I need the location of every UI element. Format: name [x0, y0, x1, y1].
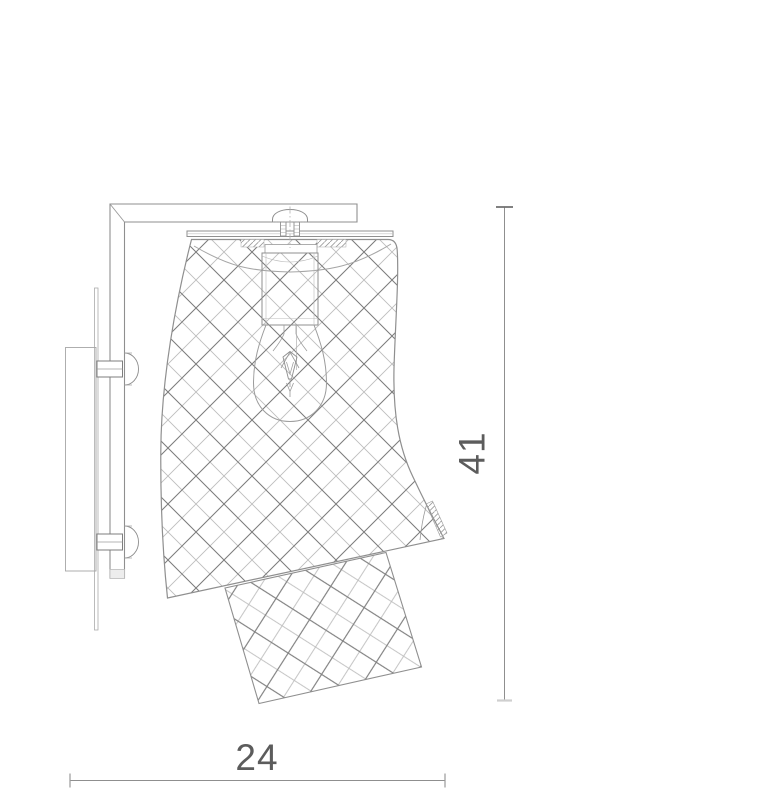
width-dimension: 24 [70, 737, 445, 788]
height-dimension-label: 41 [452, 431, 493, 474]
hem-left-hatch [241, 240, 264, 248]
screw-clip-arc [125, 526, 139, 558]
bracket-end-cap [110, 570, 125, 579]
height-dimension: 41 [452, 207, 514, 701]
socket-cap [265, 245, 317, 254]
screw-clip-ticks [125, 353, 133, 385]
shade-body-hatch-dark [161, 240, 444, 599]
screw-clip-arc [125, 353, 139, 385]
technical-drawing-canvas: 41 24 [0, 0, 765, 795]
screw-clip-ticks [125, 526, 133, 558]
mount-plate [66, 348, 97, 572]
width-dimension-label: 24 [235, 737, 278, 778]
shade-body [161, 240, 444, 599]
hem-right-hatch [317, 240, 346, 248]
lamp-shade [161, 240, 447, 704]
technical-drawing-page: 41 24 [0, 0, 765, 795]
